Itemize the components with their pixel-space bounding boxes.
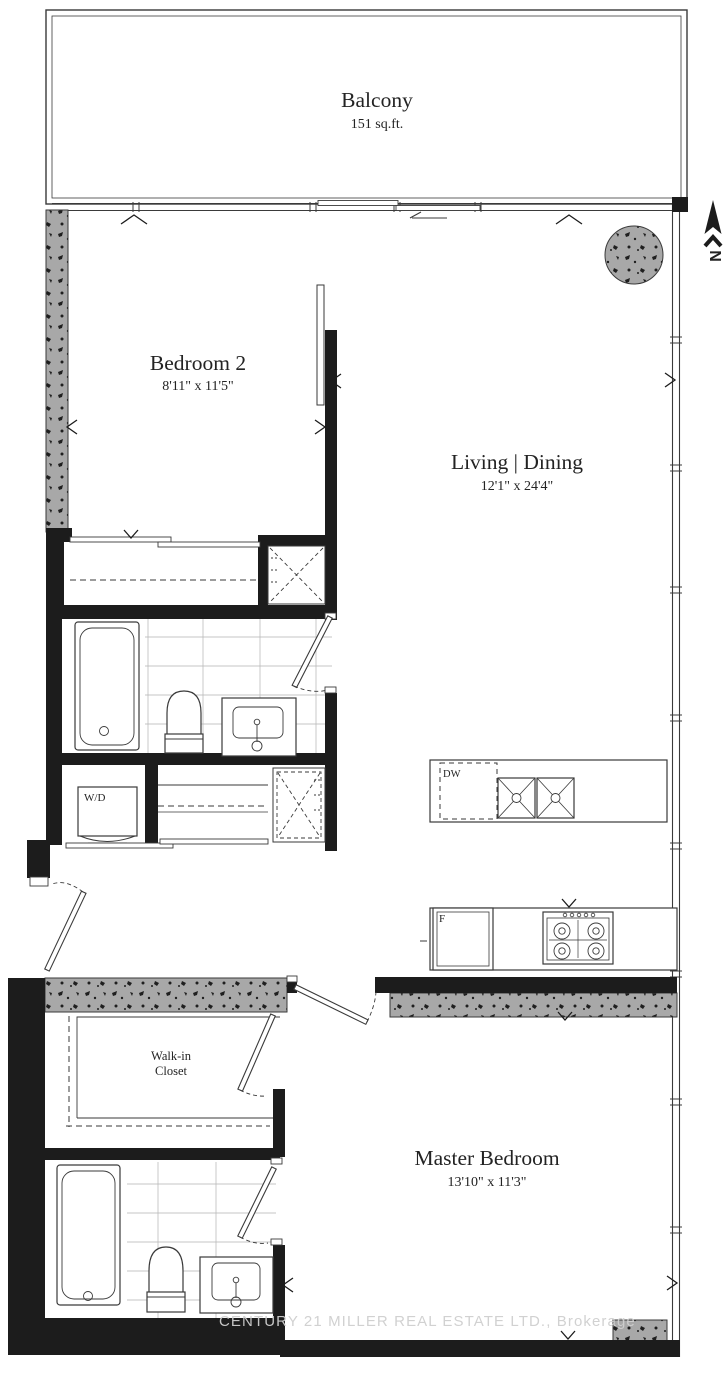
bathtub <box>75 622 139 750</box>
wall <box>280 1340 680 1357</box>
master-bedroom-dims: 13'10" x 11'3" <box>448 1175 527 1190</box>
wall <box>27 840 50 878</box>
wall <box>46 765 62 845</box>
wall <box>46 619 62 757</box>
toilet-base <box>147 1292 185 1312</box>
washer-dryer-label: W/D <box>84 792 105 804</box>
room-labels: Balcony 151 sq.ft. Bedroom 2 8'11" x 11'… <box>84 88 583 1190</box>
walk-in-closet-door-swing <box>240 1090 267 1096</box>
corridor-concrete-wall-right <box>390 993 677 1017</box>
bedroom2-exterior-concrete-wall <box>46 210 68 532</box>
master-bedroom-label: Master Bedroom <box>414 1146 559 1170</box>
right-window-wall <box>673 204 680 1358</box>
wall <box>27 1148 280 1160</box>
master-bedroom-door-leaf <box>294 985 368 1025</box>
north-label: N <box>706 250 723 262</box>
ensuite-fixtures <box>57 1165 273 1313</box>
closet-slider-panel <box>70 537 171 542</box>
wall <box>325 693 337 755</box>
floor-plan-drawing: N Balcony 151 sq.ft. Bedroom 2 8'11" x 1… <box>0 0 728 1375</box>
walk-in-closet-door-leaf <box>238 1014 275 1091</box>
wall <box>325 753 337 851</box>
closet-slider-panel <box>160 839 268 844</box>
bedroom2-pocket-door <box>317 285 324 405</box>
wall <box>46 605 337 619</box>
wall <box>27 978 45 1013</box>
balcony-label: Balcony <box>341 88 413 112</box>
stove <box>543 912 613 964</box>
kitchen-island <box>430 760 667 822</box>
wall <box>672 197 688 212</box>
wall <box>273 1089 285 1157</box>
wall <box>8 978 45 1355</box>
bathtub <box>57 1165 120 1305</box>
wall <box>375 977 677 993</box>
balcony-area: 151 sq.ft. <box>351 117 404 132</box>
corridor-concrete-wall-left <box>45 978 287 1012</box>
right-window-mullions <box>670 337 682 1233</box>
balcony-slider-panel-1 <box>318 201 398 206</box>
toilet <box>149 1247 183 1292</box>
brokerage-watermark: CENTURY 21 MILLER REAL ESTATE LTD., Brok… <box>219 1313 636 1330</box>
main-bathroom-fixtures <box>75 622 296 756</box>
bedroom2-dims: 8'11" x 11'5" <box>162 379 233 394</box>
floor-plan-page: N Balcony 151 sq.ft. Bedroom 2 8'11" x 1… <box>0 0 728 1375</box>
bedroom2-label: Bedroom 2 <box>150 351 246 375</box>
entry-door-swing <box>52 883 83 892</box>
wall <box>145 763 158 843</box>
bedroom2-closet <box>70 537 260 580</box>
main-bath-door-swing <box>294 686 328 691</box>
sink-vanity <box>200 1257 273 1313</box>
slider-direction-arrow <box>410 212 447 218</box>
ensuite-door-swing <box>240 1237 268 1243</box>
toilet-base <box>165 734 203 753</box>
fridge-label: F <box>439 913 445 925</box>
master-bedroom-door-swing <box>367 992 376 1022</box>
linen-closet-lower <box>273 768 325 842</box>
walk-in-closet-label-1: Walk-in <box>151 1049 192 1063</box>
walk-in-closet-label-2: Closet <box>155 1064 187 1078</box>
living-dining-dims: 12'1" x 24'4" <box>481 479 553 494</box>
balcony-slider-panel-2 <box>396 206 480 211</box>
living-dining-label: Living | Dining <box>451 450 583 474</box>
ensuite-door-leaf <box>238 1167 276 1238</box>
north-arrow-icon: N <box>705 200 724 262</box>
dishwasher-label: DW <box>443 769 461 780</box>
entry-door-leaf <box>45 891 86 971</box>
wall <box>325 330 337 620</box>
round-concrete-column <box>605 226 663 284</box>
linen-closet-upper <box>268 546 325 604</box>
main-bath-door-leaf <box>292 616 332 688</box>
toilet <box>167 691 201 734</box>
closet-slider-panel <box>158 542 260 547</box>
kitchen-counter <box>420 908 677 970</box>
closet-slider-panel <box>66 843 173 848</box>
